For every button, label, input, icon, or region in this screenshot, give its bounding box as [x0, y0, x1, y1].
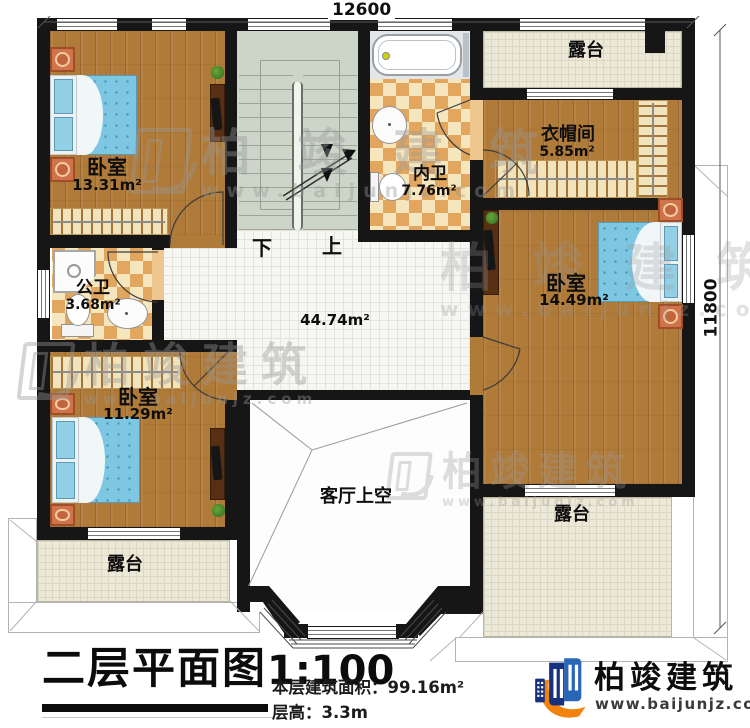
- company-logo-icon: [533, 655, 591, 726]
- headboard-cushion: [56, 421, 75, 459]
- door-gap-bedroom2: [470, 337, 483, 395]
- wall-void-left: [237, 390, 250, 612]
- bed-headboard: [660, 222, 682, 302]
- label-terrace-bottom-left: 露台: [107, 556, 143, 575]
- wall-bath-closet-upper: [470, 18, 483, 100]
- label-closet-area: 5.85m²: [539, 145, 594, 160]
- wall-bath-closet-lower: [470, 160, 483, 210]
- wardrobe: [50, 356, 181, 389]
- headboard-cushion: [664, 226, 678, 261]
- floor-plan-page: 柏竣建筑 www.baijunjz.com 柏竣建筑 www.baijunjz.…: [0, 0, 750, 728]
- nightstand: [658, 304, 683, 329]
- label-bedroom2-area: 14.49m²: [539, 293, 609, 309]
- dimension-right-value: 11800: [702, 274, 722, 341]
- door-gap-publicbath: [152, 250, 164, 300]
- window-bay-center: [307, 626, 399, 639]
- logo-building-light: [564, 658, 581, 701]
- plant: [212, 504, 225, 517]
- wall-bedroom1-stair: [225, 18, 237, 248]
- floor-area-text: 本层建筑面积：99.16m²: [272, 674, 464, 698]
- nightstand: [50, 47, 75, 72]
- label-terrace-top: 露台: [568, 42, 604, 61]
- nightstand: [50, 393, 75, 415]
- label-publicbath-name: 公卫: [76, 280, 110, 298]
- company-name: 柏竣建筑: [594, 663, 738, 694]
- wall-stair-bath: [358, 18, 370, 230]
- wall-bath-bottom: [358, 230, 483, 242]
- wall-hall-void: [237, 390, 483, 400]
- company-website: www.baijunjz.com: [595, 695, 750, 713]
- shower-glass: [463, 33, 469, 77]
- plan-title-text: 二层平面图: [42, 648, 267, 691]
- window-bedroom1-a: [57, 18, 117, 31]
- wall-hall-bedroom2: [470, 210, 483, 337]
- door-gap-bedroom1: [170, 235, 225, 248]
- label-ensuite-area: 7.76m²: [401, 184, 456, 199]
- label-bedroom1-name: 卧室: [87, 157, 127, 178]
- toilet-tank: [370, 172, 379, 202]
- roof-eave-right: [693, 165, 728, 660]
- label-stairs-down: 下: [252, 238, 272, 259]
- label-hall-area: 44.74m²: [300, 313, 370, 329]
- title-underline-thin: [42, 717, 274, 718]
- window-terrace-parapet: [520, 18, 645, 31]
- closet-hanger-rail-right: [638, 100, 668, 198]
- roof-eave-bottom-right: [455, 637, 728, 662]
- plant: [211, 66, 224, 79]
- label-void: 客厅上空: [320, 488, 392, 507]
- window-bedroom3-bottom: [88, 527, 180, 540]
- wall-bedroom1-bottom: [37, 235, 170, 248]
- closet-hanger-rail-bottom: [495, 160, 637, 198]
- logo-column: [535, 679, 545, 703]
- label-terrace-bottom-right: 露台: [554, 506, 590, 525]
- door-gap-ensuite: [470, 100, 483, 160]
- door-gap-bedroom3: [225, 352, 237, 400]
- bathtub: [372, 34, 462, 76]
- headboard-cushion: [54, 79, 73, 114]
- wall-publicbath-bottom: [37, 340, 237, 352]
- window-bedroom2-bottom: [525, 484, 615, 497]
- headboard-cushion: [56, 462, 75, 500]
- bed-headboard: [50, 75, 77, 155]
- window-bedroom1-b: [152, 18, 186, 31]
- window-terrace-closet: [527, 88, 613, 100]
- nightstand: [50, 504, 75, 526]
- wall-publicbath-right-a: [152, 235, 164, 250]
- bed-headboard: [52, 417, 79, 503]
- window-bedroom2-right: [682, 235, 695, 303]
- nightstand: [658, 198, 683, 222]
- label-bedroom3-area: 11.29m²: [103, 407, 173, 423]
- roof-eave-bottom-left: [8, 602, 260, 633]
- title-underline-bar: [42, 704, 268, 712]
- wall-bedroom3-right: [225, 400, 237, 527]
- wardrobe: [50, 208, 168, 235]
- stair-rail: [292, 82, 303, 230]
- window-stair: [248, 18, 330, 31]
- dimension-top-value: 12600: [328, 0, 395, 20]
- label-publicbath-area: 3.68m²: [65, 298, 120, 313]
- headboard-cushion: [54, 117, 73, 152]
- floor-height-text: 层高：3.3m: [272, 699, 368, 723]
- wall-terrace-corner-chunk: [645, 31, 665, 53]
- window-publicbath-left: [37, 270, 50, 318]
- label-bedroom1-area: 13.31m²: [72, 178, 142, 194]
- headboard-cushion: [664, 264, 678, 299]
- wall-void-right: [470, 395, 483, 610]
- plant: [486, 212, 498, 224]
- sink: [372, 106, 407, 144]
- label-stairs-up: 上: [322, 236, 342, 257]
- label-closet-name: 衣帽间: [541, 126, 595, 145]
- label-ensuite-name: 内卫: [413, 166, 447, 184]
